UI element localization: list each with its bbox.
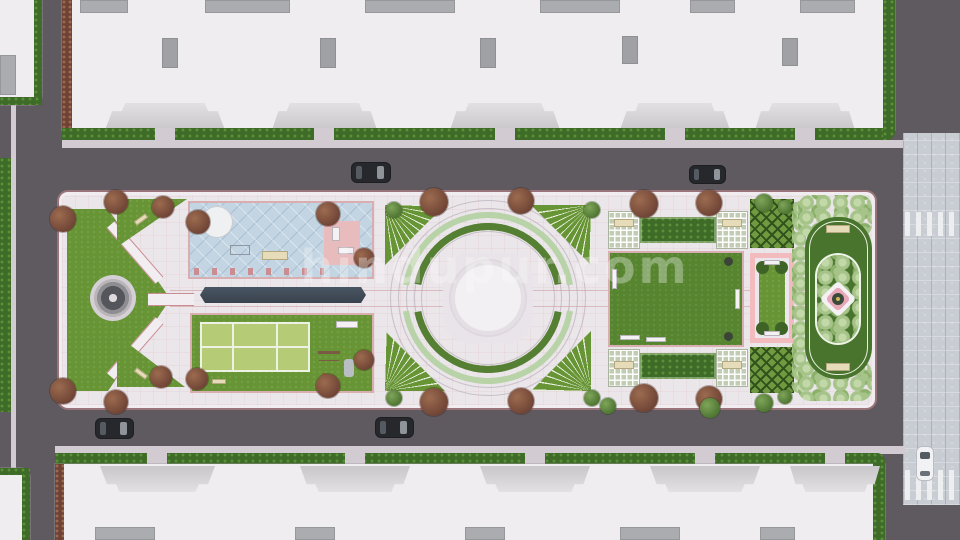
roof-vent [205, 0, 290, 13]
roof-vent [540, 0, 620, 13]
roof-hatch [162, 38, 178, 68]
roof-vent [620, 527, 680, 540]
swing-frame [318, 351, 340, 354]
roof-vent [690, 0, 735, 13]
garden-bench [212, 379, 226, 384]
pool-structure [230, 245, 250, 255]
dark-car-4 [376, 418, 413, 437]
pink-formal-garden [750, 253, 794, 343]
corner-building-nw [0, 0, 42, 105]
pergola [716, 211, 748, 249]
roof-vent [95, 527, 155, 540]
watermark: hindupur.com [300, 240, 689, 294]
roof-vent [0, 55, 16, 95]
oval-bench [826, 363, 850, 371]
white-car [917, 447, 933, 480]
sign-board [336, 321, 358, 328]
planter-bed [640, 353, 716, 379]
hedge-strip [0, 97, 42, 105]
dark-car-3 [96, 419, 133, 438]
roof-vent [465, 527, 505, 540]
zebra-crossing-north [905, 212, 960, 236]
hedge-strip [34, 0, 42, 105]
knot-parterre [750, 347, 794, 393]
hedge-strip [883, 0, 895, 140]
south-road [0, 400, 960, 448]
west-hedge [0, 158, 11, 412]
oval-bench [826, 225, 850, 233]
pool-bench [262, 251, 288, 260]
dark-car-2 [690, 166, 725, 183]
aerial-site-plan: hindupur.com [0, 0, 960, 540]
hedge-strip [62, 128, 883, 140]
central-park [62, 195, 872, 405]
roof-hatch [480, 38, 496, 68]
circular-fountain [90, 275, 136, 321]
corner-building-sw [0, 468, 30, 540]
roof-hatch [320, 38, 336, 68]
roof-vent [800, 0, 855, 13]
flower-medallion [825, 286, 851, 312]
north-sidewalk [62, 140, 903, 148]
dark-car-1 [352, 163, 390, 182]
roof-vent [365, 0, 455, 13]
axis-path [148, 293, 194, 306]
roof-hatch [622, 36, 638, 64]
slide [344, 359, 354, 377]
roof-vent [80, 0, 128, 13]
sports-lawn [192, 315, 372, 391]
oval-garden [805, 217, 872, 379]
sport-court [200, 322, 310, 372]
roof-vent [760, 527, 795, 540]
autumn-hedge [62, 0, 72, 130]
north-road [0, 140, 905, 195]
roof-vent [295, 527, 335, 540]
autumn-hedge [55, 464, 64, 540]
roof-hatch [782, 38, 798, 66]
